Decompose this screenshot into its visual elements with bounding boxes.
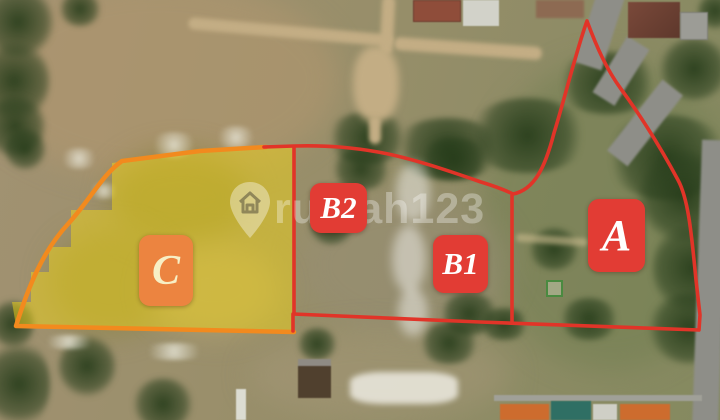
map-pin-house-icon [228,180,272,242]
watermark: rumah123 [228,180,528,242]
zone-label-c: C [139,235,193,306]
watermark-text: rumah123 [274,185,485,234]
zone-label-a: A [588,199,645,272]
zone-label-b2: B2 [310,183,367,233]
aerial-site-photo: rumah123 C B2 B1 A [0,0,720,420]
small-plot-marker [547,281,562,296]
zone-label-b1: B1 [433,235,488,293]
